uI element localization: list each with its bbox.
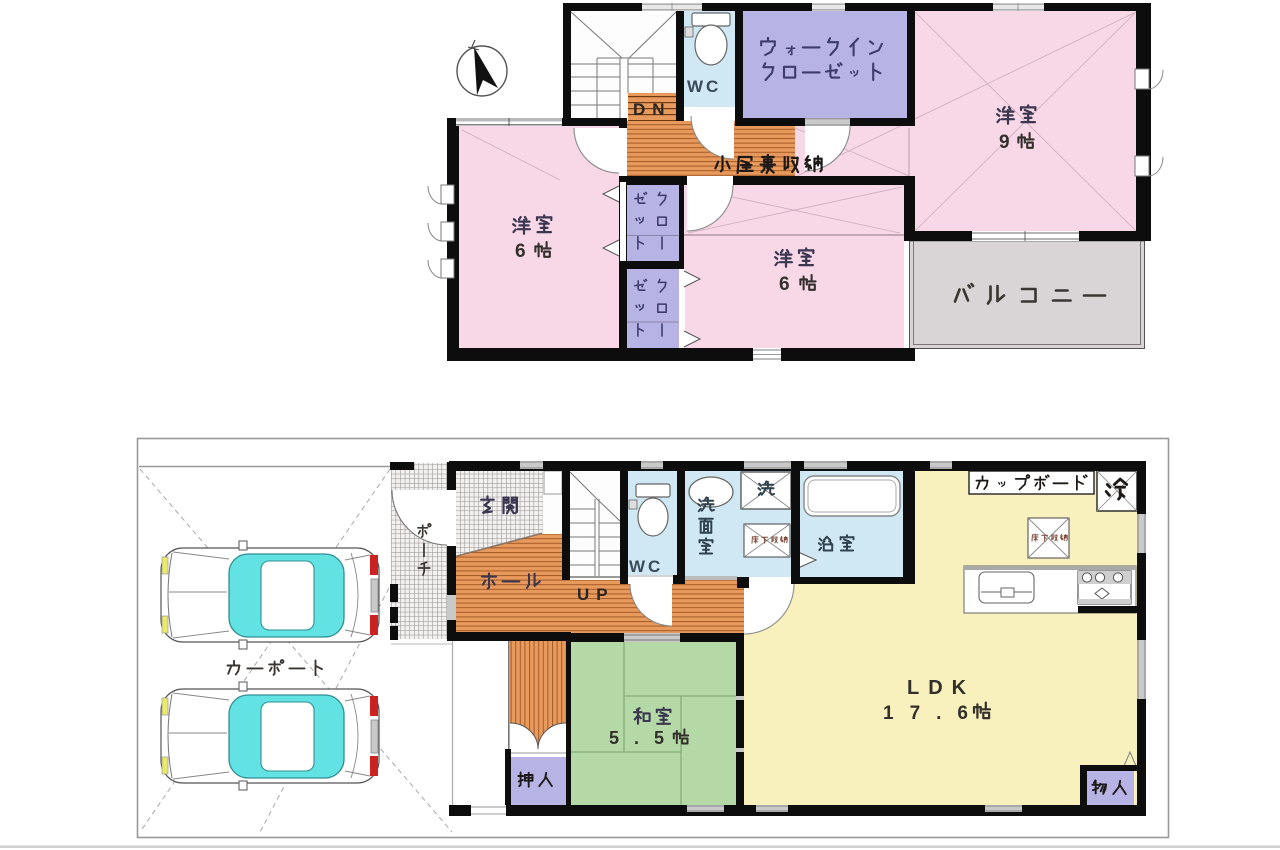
svg-text:UP: UP xyxy=(577,585,615,604)
svg-text:WC: WC xyxy=(629,557,663,576)
svg-text:6: 6 xyxy=(779,274,790,295)
svg-text:9: 9 xyxy=(999,132,1010,153)
svg-text:17.6: 17.6 xyxy=(883,703,984,724)
svg-text:WC: WC xyxy=(687,77,721,96)
svg-text:5.5: 5.5 xyxy=(609,728,679,748)
svg-text:LDK: LDK xyxy=(907,677,975,699)
svg-text:DN: DN xyxy=(633,100,672,119)
svg-text:6: 6 xyxy=(515,241,526,262)
